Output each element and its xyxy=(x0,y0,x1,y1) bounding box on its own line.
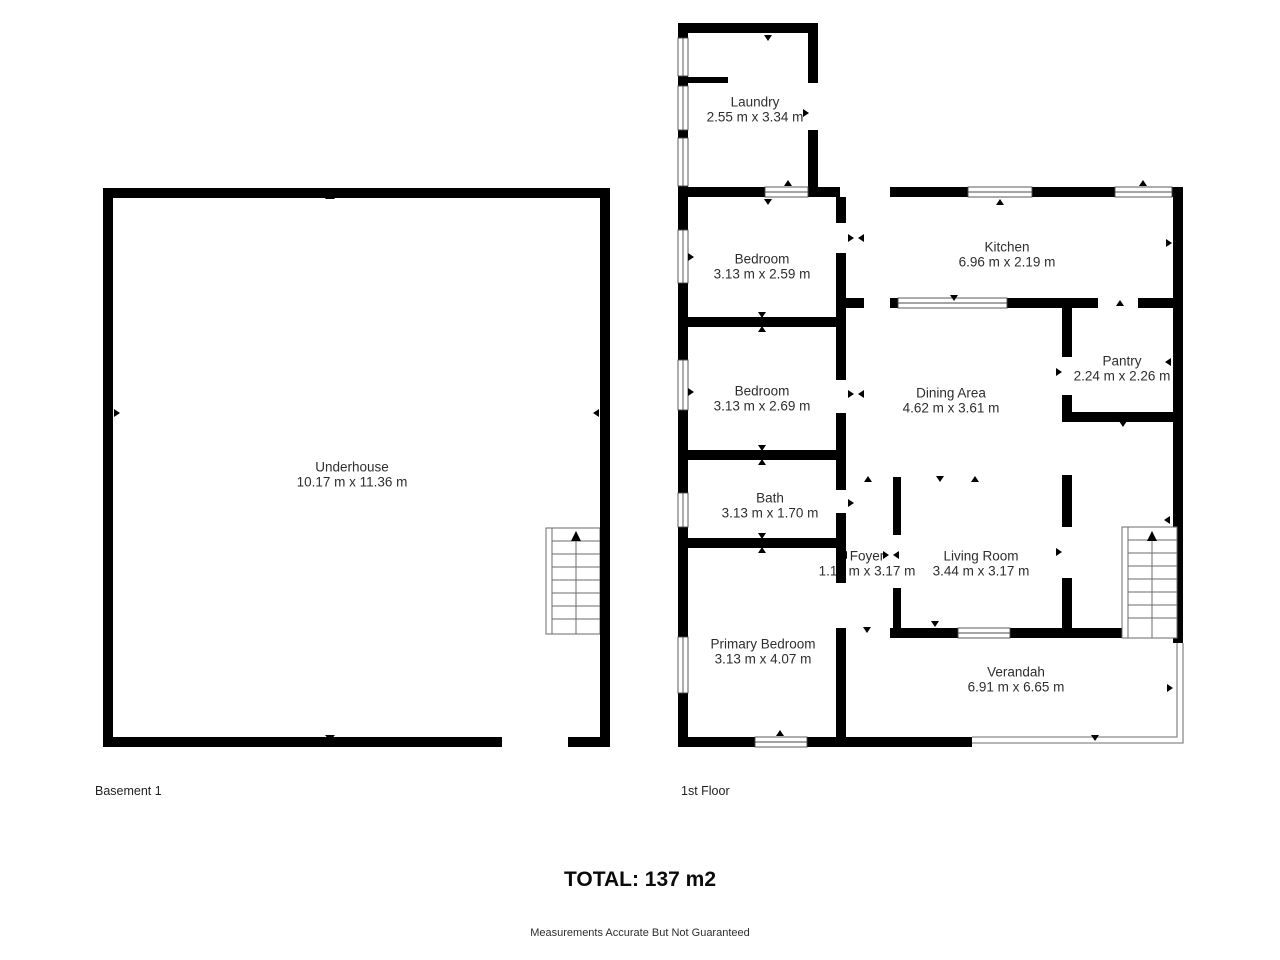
disclaimer-text: Measurements Accurate But Not Guaranteed xyxy=(0,927,1280,939)
basement-stairs-icon xyxy=(546,528,600,634)
basement-door-arrows xyxy=(114,193,599,741)
floor-plan-page: Underhouse 10.17 m x 11.36 m Laundry 2.5… xyxy=(0,0,1280,960)
basement-walls xyxy=(103,188,610,747)
first-floor-walls xyxy=(678,23,1183,747)
floor-plan-drawing xyxy=(0,0,1280,960)
basement-floor-label: Basement 1 xyxy=(95,784,162,798)
first-floor-stairs-icon xyxy=(1122,527,1177,638)
first-floor-label: 1st Floor xyxy=(681,784,730,798)
verandah-railing xyxy=(972,643,1183,743)
total-area-label: TOTAL: 137 m2 xyxy=(0,868,1280,892)
window-icons xyxy=(678,38,1172,747)
